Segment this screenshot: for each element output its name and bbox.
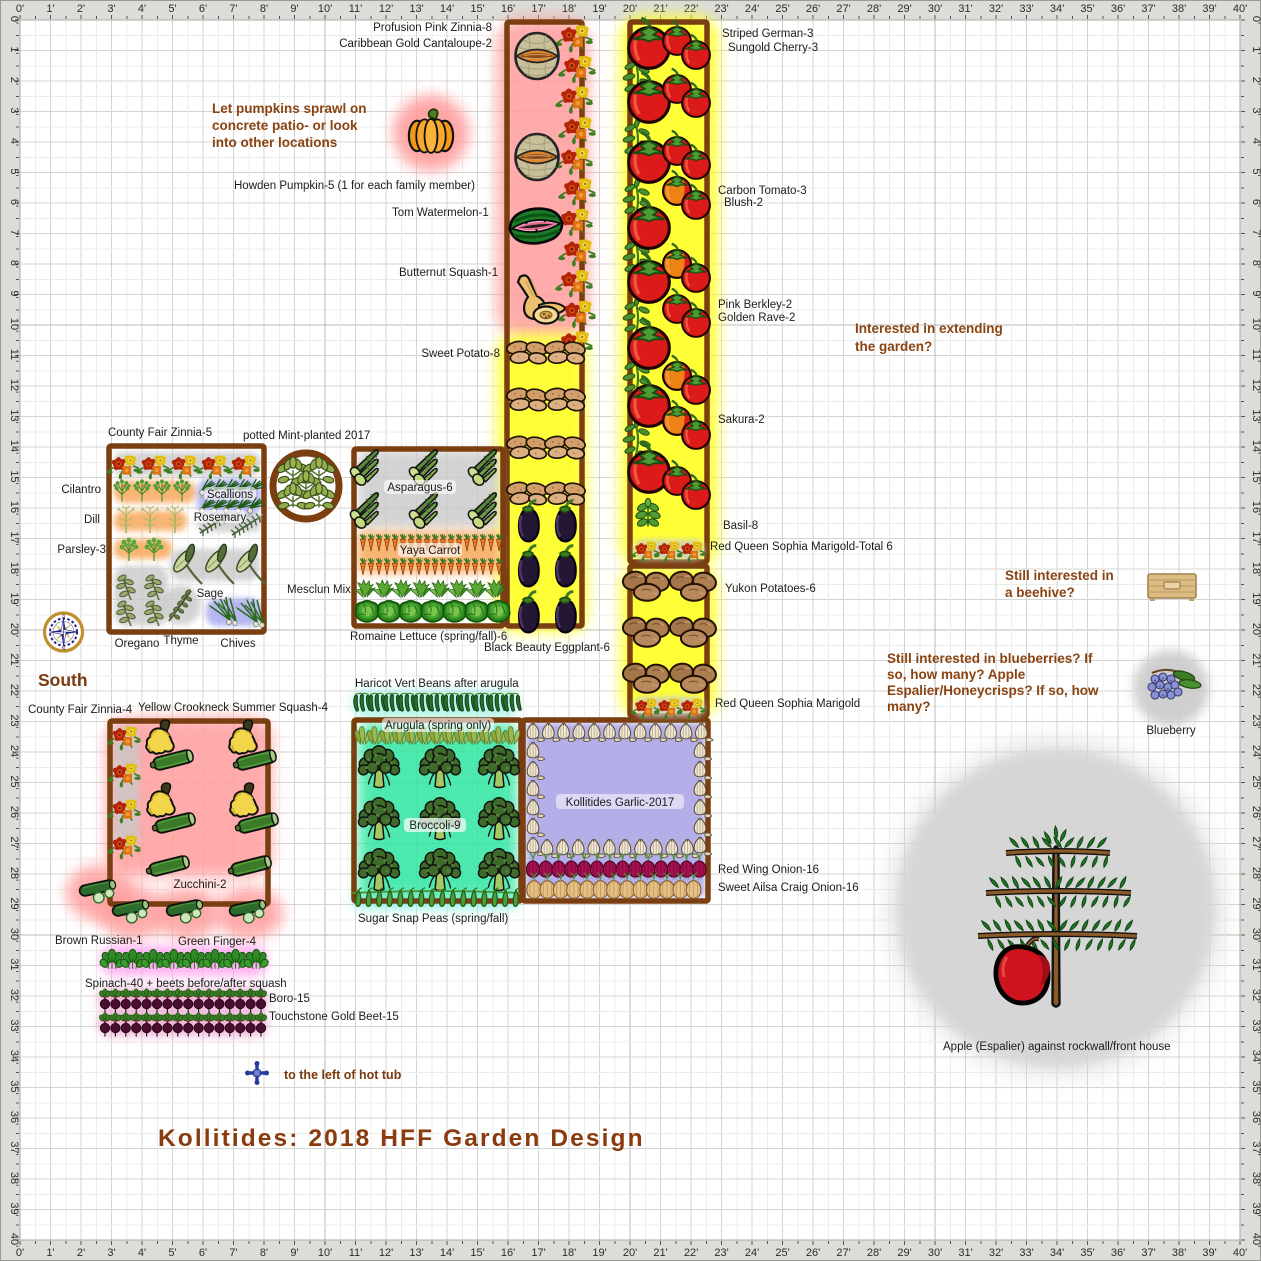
svg-text:26': 26' (806, 3, 820, 15)
svg-text:4': 4' (8, 138, 20, 146)
svg-text:18': 18' (8, 562, 20, 576)
svg-text:34': 34' (1050, 3, 1064, 15)
svg-text:Golden Rave-2: Golden Rave-2 (718, 312, 795, 324)
svg-text:9': 9' (290, 3, 298, 15)
svg-text:Spinach-40 + beets before/afte: Spinach-40 + beets before/after squash (85, 978, 287, 990)
svg-text:31': 31' (8, 958, 20, 972)
svg-text:Still interested in blueberrie: Still interested in blueberries? If (887, 651, 1093, 666)
svg-text:Green Finger-4: Green Finger-4 (178, 936, 257, 948)
svg-text:29': 29' (1250, 897, 1261, 911)
svg-text:12': 12' (379, 3, 393, 15)
svg-text:36': 36' (1250, 1111, 1261, 1125)
svg-text:16': 16' (501, 1247, 515, 1259)
svg-text:4': 4' (138, 1247, 146, 1259)
svg-text:concrete patio- or look: concrete patio- or look (212, 118, 358, 133)
svg-text:22': 22' (1250, 684, 1261, 698)
svg-text:Dill: Dill (84, 514, 100, 526)
svg-text:15': 15' (470, 3, 484, 15)
svg-text:Brown Russian-1: Brown Russian-1 (55, 935, 143, 947)
svg-text:28': 28' (867, 3, 881, 15)
svg-text:36': 36' (8, 1111, 20, 1125)
svg-text:0': 0' (8, 16, 20, 24)
svg-text:33': 33' (8, 1019, 20, 1033)
svg-text:14': 14' (1250, 440, 1261, 454)
svg-text:17': 17' (531, 3, 545, 15)
svg-text:37': 37' (1141, 3, 1155, 15)
svg-text:2': 2' (1250, 77, 1261, 85)
svg-text:6': 6' (199, 3, 207, 15)
svg-text:Butternut Squash-1: Butternut Squash-1 (399, 267, 498, 279)
svg-text:37': 37' (1250, 1141, 1261, 1155)
svg-text:19': 19' (592, 3, 606, 15)
svg-text:27': 27' (836, 3, 850, 15)
svg-text:10': 10' (8, 318, 20, 332)
svg-text:21': 21' (653, 3, 667, 15)
svg-text:10': 10' (318, 3, 332, 15)
svg-text:Caribbean Gold Cantaloupe-2: Caribbean Gold Cantaloupe-2 (339, 38, 492, 50)
svg-text:Rosemary: Rosemary (194, 512, 247, 524)
svg-text:potted Mint-planted 2017: potted Mint-planted 2017 (243, 430, 370, 442)
svg-text:Basil-8: Basil-8 (723, 520, 758, 532)
svg-text:37': 37' (8, 1141, 20, 1155)
svg-text:Arugula (spring only): Arugula (spring only) (385, 720, 491, 732)
svg-text:Chives: Chives (220, 638, 255, 650)
svg-text:Espalier/Honeycrisps? If so, h: Espalier/Honeycrisps? If so, how (887, 683, 1099, 698)
svg-text:39': 39' (1250, 1202, 1261, 1216)
svg-text:South: South (38, 670, 88, 690)
svg-text:Mesclun Mix: Mesclun Mix (287, 584, 351, 596)
svg-text:Black Beauty Eggplant-6: Black Beauty Eggplant-6 (484, 642, 610, 654)
svg-text:2': 2' (8, 77, 20, 85)
svg-text:39': 39' (1202, 3, 1216, 15)
svg-text:Parsley-3: Parsley-3 (57, 544, 106, 556)
svg-text:23': 23' (714, 1247, 728, 1259)
svg-text:27': 27' (1250, 836, 1261, 850)
svg-text:20': 20' (623, 3, 637, 15)
svg-text:Apple (Espalier) against rockw: Apple (Espalier) against rockwall/front … (943, 1041, 1171, 1053)
svg-text:29': 29' (897, 3, 911, 15)
svg-text:31': 31' (958, 1247, 972, 1259)
svg-text:14': 14' (440, 1247, 454, 1259)
svg-text:30': 30' (928, 3, 942, 15)
svg-text:26': 26' (8, 806, 20, 820)
svg-text:35': 35' (8, 1080, 20, 1094)
svg-text:Asparagus-6: Asparagus-6 (387, 482, 452, 494)
svg-text:Boro-15: Boro-15 (269, 993, 310, 1005)
svg-text:35': 35' (1080, 1247, 1094, 1259)
svg-text:18': 18' (1250, 562, 1261, 576)
svg-text:31': 31' (958, 3, 972, 15)
svg-text:21': 21' (1250, 653, 1261, 667)
svg-text:Sungold Cherry-3: Sungold Cherry-3 (728, 42, 818, 54)
svg-text:2': 2' (77, 1247, 85, 1259)
svg-text:7': 7' (229, 1247, 237, 1259)
svg-text:10': 10' (318, 1247, 332, 1259)
svg-text:Sweet Potato-8: Sweet Potato-8 (421, 348, 500, 360)
svg-text:16': 16' (501, 3, 515, 15)
svg-text:35': 35' (1080, 3, 1094, 15)
svg-text:24': 24' (745, 1247, 759, 1259)
svg-text:14': 14' (440, 3, 454, 15)
svg-text:19': 19' (1250, 592, 1261, 606)
svg-text:17': 17' (8, 531, 20, 545)
svg-text:20': 20' (623, 1247, 637, 1259)
svg-text:the garden?: the garden? (855, 339, 932, 354)
svg-text:Cilantro: Cilantro (61, 484, 101, 496)
svg-text:7': 7' (8, 229, 20, 237)
svg-text:5': 5' (8, 168, 20, 176)
svg-text:28': 28' (867, 1247, 881, 1259)
svg-text:into other locations: into other locations (212, 135, 337, 150)
svg-text:Carbon Tomato-3: Carbon Tomato-3 (718, 185, 807, 197)
svg-text:Sugar Snap Peas (spring/fall): Sugar Snap Peas (spring/fall) (358, 913, 508, 925)
svg-text:6': 6' (1250, 199, 1261, 207)
svg-text:16': 16' (1250, 501, 1261, 515)
svg-text:11': 11' (1250, 349, 1261, 363)
svg-text:15': 15' (8, 470, 20, 484)
svg-text:39': 39' (1202, 1247, 1216, 1259)
svg-text:Oregano: Oregano (115, 638, 160, 650)
svg-text:so, how many? Apple: so, how many? Apple (887, 667, 1026, 682)
svg-text:8': 8' (260, 3, 268, 15)
svg-text:18': 18' (562, 3, 576, 15)
svg-text:31': 31' (1250, 958, 1261, 972)
svg-text:32': 32' (989, 3, 1003, 15)
svg-text:Broccoli-9: Broccoli-9 (409, 820, 460, 832)
svg-text:0': 0' (16, 3, 24, 15)
svg-text:Sakura-2: Sakura-2 (718, 414, 765, 426)
svg-text:21': 21' (653, 1247, 667, 1259)
svg-text:18': 18' (562, 1247, 576, 1259)
svg-text:many?: many? (887, 699, 931, 714)
svg-text:29': 29' (897, 1247, 911, 1259)
svg-text:Red Wing Onion-16: Red Wing Onion-16 (718, 864, 819, 876)
svg-text:1': 1' (46, 3, 54, 15)
svg-text:14': 14' (8, 440, 20, 454)
svg-text:24': 24' (1250, 745, 1261, 759)
svg-text:5': 5' (168, 3, 176, 15)
svg-text:Let pumpkins sprawl on: Let pumpkins sprawl on (212, 101, 367, 116)
svg-text:0': 0' (1250, 16, 1261, 24)
svg-text:23': 23' (714, 3, 728, 15)
svg-text:Yaya Carrot: Yaya Carrot (400, 545, 461, 557)
svg-text:Blush-2: Blush-2 (724, 197, 763, 209)
svg-text:38': 38' (1250, 1172, 1261, 1186)
svg-text:3': 3' (107, 3, 115, 15)
svg-text:to the left of hot tub: to the left of hot tub (284, 1068, 402, 1082)
svg-text:11': 11' (8, 349, 20, 363)
svg-text:4': 4' (1250, 138, 1261, 146)
svg-text:37': 37' (1141, 1247, 1155, 1259)
svg-text:Haricot Vert Beans after arugu: Haricot Vert Beans after arugula (355, 678, 519, 690)
svg-text:County Fair Zinnia-4: County Fair Zinnia-4 (28, 704, 133, 716)
svg-text:27': 27' (8, 836, 20, 850)
svg-text:8': 8' (1250, 260, 1261, 268)
svg-text:7': 7' (229, 3, 237, 15)
svg-text:24': 24' (8, 745, 20, 759)
svg-text:Pink Berkley-2: Pink Berkley-2 (718, 299, 792, 311)
svg-text:26': 26' (806, 1247, 820, 1259)
svg-text:Kollitides: 2018 HFF Garden De: Kollitides: 2018 HFF Garden Design (158, 1125, 645, 1152)
svg-text:Kollitides Garlic-2017: Kollitides Garlic-2017 (566, 797, 675, 809)
svg-text:3': 3' (8, 107, 20, 115)
svg-text:25': 25' (1250, 775, 1261, 789)
svg-text:28': 28' (1250, 867, 1261, 881)
svg-text:29': 29' (8, 897, 20, 911)
svg-text:21': 21' (8, 653, 20, 667)
svg-text:1': 1' (46, 1247, 54, 1259)
svg-text:10': 10' (1250, 318, 1261, 332)
svg-text:Howden Pumpkin-5 (1 for each f: Howden Pumpkin-5 (1 for each family memb… (234, 180, 475, 192)
svg-text:15': 15' (1250, 470, 1261, 484)
svg-text:24': 24' (745, 3, 759, 15)
svg-text:30': 30' (1250, 928, 1261, 942)
svg-text:Red Queen Sophia Marigold: Red Queen Sophia Marigold (715, 698, 860, 710)
svg-text:0': 0' (16, 1247, 24, 1259)
svg-text:Touchstone Gold Beet-15: Touchstone Gold Beet-15 (269, 1011, 399, 1023)
svg-text:Sage: Sage (197, 588, 224, 600)
svg-text:County Fair Zinnia-5: County Fair Zinnia-5 (108, 427, 212, 439)
svg-text:17': 17' (1250, 531, 1261, 545)
svg-text:25': 25' (775, 1247, 789, 1259)
svg-text:Yellow Crookneck Summer Squash: Yellow Crookneck Summer Squash-4 (138, 702, 329, 714)
svg-text:27': 27' (836, 1247, 850, 1259)
svg-text:23': 23' (8, 714, 20, 728)
svg-text:22': 22' (684, 1247, 698, 1259)
svg-text:40': 40' (8, 1233, 20, 1247)
svg-text:34': 34' (1250, 1050, 1261, 1064)
svg-text:32': 32' (989, 1247, 1003, 1259)
svg-text:9': 9' (290, 1247, 298, 1259)
svg-text:15': 15' (470, 1247, 484, 1259)
svg-text:5': 5' (1250, 168, 1261, 176)
svg-text:12': 12' (1250, 379, 1261, 393)
svg-text:32': 32' (1250, 989, 1261, 1003)
svg-text:11': 11' (349, 1247, 363, 1259)
svg-text:9': 9' (1250, 290, 1261, 298)
svg-text:33': 33' (1250, 1019, 1261, 1033)
svg-text:30': 30' (8, 928, 20, 942)
svg-text:30': 30' (928, 1247, 942, 1259)
svg-text:40': 40' (1233, 3, 1247, 15)
svg-text:Zucchini-2: Zucchini-2 (173, 879, 226, 891)
svg-text:38': 38' (1172, 3, 1186, 15)
svg-text:2': 2' (77, 3, 85, 15)
svg-text:Interested in extending: Interested in extending (855, 321, 1003, 336)
svg-text:Thyme: Thyme (163, 635, 198, 647)
svg-text:13': 13' (8, 409, 20, 423)
svg-text:33': 33' (1019, 3, 1033, 15)
svg-text:Striped German-3: Striped German-3 (722, 28, 813, 40)
svg-text:5': 5' (168, 1247, 176, 1259)
svg-text:22': 22' (684, 3, 698, 15)
svg-text:3': 3' (1250, 107, 1261, 115)
svg-text:Yukon Potatoes-6: Yukon Potatoes-6 (725, 583, 816, 595)
svg-text:3': 3' (107, 1247, 115, 1259)
svg-text:39': 39' (8, 1202, 20, 1216)
svg-text:33': 33' (1019, 1247, 1033, 1259)
svg-text:Red Queen Sophia Marigold-Tota: Red Queen Sophia Marigold-Total 6 (710, 541, 893, 553)
svg-text:40': 40' (1250, 1233, 1261, 1247)
svg-text:40': 40' (1233, 1247, 1247, 1259)
svg-text:7': 7' (1250, 229, 1261, 237)
svg-text:36': 36' (1111, 3, 1125, 15)
svg-text:20': 20' (1250, 623, 1261, 637)
svg-text:19': 19' (592, 1247, 606, 1259)
svg-text:32': 32' (8, 989, 20, 1003)
svg-text:9': 9' (8, 290, 20, 298)
svg-text:6': 6' (8, 199, 20, 207)
svg-text:35': 35' (1250, 1080, 1261, 1094)
svg-text:28': 28' (8, 867, 20, 881)
svg-text:1': 1' (1250, 46, 1261, 54)
svg-text:Tom Watermelon-1: Tom Watermelon-1 (392, 207, 489, 219)
svg-text:8': 8' (260, 1247, 268, 1259)
svg-text:Profusion Pink Zinnia-8: Profusion Pink Zinnia-8 (373, 22, 492, 34)
svg-text:13': 13' (1250, 409, 1261, 423)
svg-text:34': 34' (8, 1050, 20, 1064)
svg-text:38': 38' (8, 1172, 20, 1186)
svg-text:25': 25' (8, 775, 20, 789)
svg-text:Still interested in: Still interested in (1005, 568, 1114, 583)
svg-text:Sweet Ailsa Craig Onion-16: Sweet Ailsa Craig Onion-16 (718, 882, 859, 894)
svg-text:22': 22' (8, 684, 20, 698)
svg-text:23': 23' (1250, 714, 1261, 728)
svg-text:8': 8' (8, 260, 20, 268)
svg-text:13': 13' (409, 3, 423, 15)
svg-text:26': 26' (1250, 806, 1261, 820)
svg-text:12': 12' (379, 1247, 393, 1259)
svg-text:Scallions: Scallions (207, 489, 253, 501)
svg-text:38': 38' (1172, 1247, 1186, 1259)
svg-text:11': 11' (349, 3, 363, 15)
svg-text:19': 19' (8, 592, 20, 606)
svg-text:25': 25' (775, 3, 789, 15)
svg-text:4': 4' (138, 3, 146, 15)
svg-text:17': 17' (531, 1247, 545, 1259)
svg-text:12': 12' (8, 379, 20, 393)
svg-text:20': 20' (8, 623, 20, 637)
svg-text:36': 36' (1111, 1247, 1125, 1259)
svg-text:34': 34' (1050, 1247, 1064, 1259)
svg-text:6': 6' (199, 1247, 207, 1259)
svg-text:1': 1' (8, 46, 20, 54)
svg-text:13': 13' (409, 1247, 423, 1259)
svg-text:16': 16' (8, 501, 20, 515)
svg-text:Blueberry: Blueberry (1146, 725, 1195, 737)
svg-text:a beehive?: a beehive? (1005, 585, 1075, 600)
